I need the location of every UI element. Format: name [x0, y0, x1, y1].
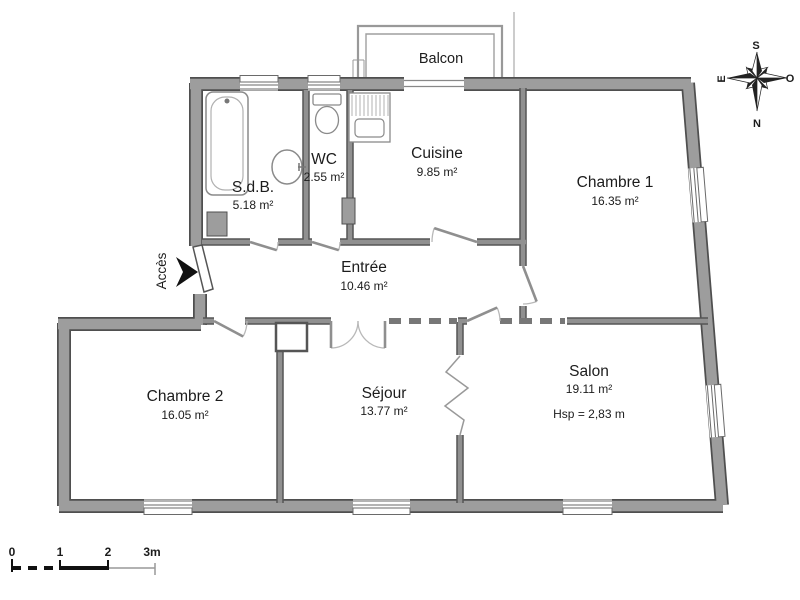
bathtub-faucet-icon: [225, 99, 230, 104]
entrance-door-leaf: [193, 245, 213, 292]
door-arc: [432, 228, 434, 242]
door-leaf: [523, 266, 537, 301]
room-name-entree: Entrée: [341, 259, 387, 276]
scale-label-0: 0: [9, 545, 16, 559]
window-frame: [563, 508, 612, 515]
entrance-door: [193, 245, 213, 292]
door-leaf: [250, 242, 277, 250]
toilet-tank: [313, 94, 341, 105]
room-area-sejour: 13.77 m²: [360, 404, 407, 418]
door-arc: [331, 321, 358, 348]
room-name-sdb: S.d.B.: [232, 179, 274, 196]
room-area-chambre2: 16.05 m²: [161, 408, 208, 422]
wall-pier-sdb: [207, 212, 227, 236]
room-name-sejour: Séjour: [362, 385, 407, 402]
scale-bar: 0 1 2 3m: [9, 545, 161, 575]
compass-rose: [727, 52, 787, 111]
room-area-entree: 10.46 m²: [340, 279, 387, 293]
exterior-wall: [688, 83, 722, 505]
compass-letter-e: E: [716, 75, 728, 82]
fixtures: [206, 92, 468, 435]
access-label: Accès: [154, 252, 169, 289]
compass-letter-n: N: [753, 118, 761, 130]
window-frame: [144, 508, 192, 515]
door-leaf: [434, 228, 477, 242]
scale-label-1: 1: [57, 545, 64, 559]
room-area-wc: 2.55 m²: [304, 170, 345, 184]
door-arc: [497, 308, 500, 321]
floor-plan-svg: Balcon S.d.B. 5.18 m² WC 2.55 m² Cuisin: [0, 0, 800, 600]
window-frame: [353, 508, 410, 515]
window-frame: [240, 76, 278, 83]
room-name-salon: Salon: [569, 363, 609, 380]
kitchen-sink-bowl: [355, 119, 384, 137]
room-name-chambre1: Chambre 1: [577, 174, 654, 191]
door-leaf: [312, 242, 339, 250]
room-area-salon: 19.11 m²: [566, 382, 612, 396]
door-leaf: [214, 321, 243, 336]
scale-label-3m: 3m: [143, 545, 160, 559]
exterior-walls: [58, 83, 723, 506]
room-area-chambre1: 16.35 m²: [591, 194, 638, 208]
entry-closet: [276, 323, 307, 351]
access-marker: Accès: [154, 252, 198, 289]
scale-label-2: 2: [105, 545, 112, 559]
access-arrow-icon: [176, 257, 198, 287]
compass-letter-s: S: [752, 40, 759, 52]
washbasin: [272, 150, 302, 184]
ceiling-height-salon: Hsp = 2,83 m: [553, 407, 625, 421]
opening-break-symbol: [445, 356, 468, 435]
room-name-wc: WC: [311, 151, 337, 168]
room-name-cuisine: Cuisine: [411, 145, 463, 162]
room-area-sdb: 5.18 m²: [233, 198, 274, 212]
door-arc: [358, 321, 385, 348]
exterior-details: [353, 12, 514, 79]
balcony-label: Balcon: [419, 51, 463, 67]
window-frame: [308, 76, 340, 83]
door-leaf: [467, 308, 497, 321]
door-arc: [523, 301, 537, 304]
room-name-chambre2: Chambre 2: [147, 388, 224, 405]
room-area-cuisine: 9.85 m²: [417, 165, 458, 179]
floor-plan-page: Balcon S.d.B. 5.18 m² WC 2.55 m² Cuisin: [0, 0, 800, 600]
compass-letter-o: O: [786, 73, 795, 85]
wall-pier-kitchen: [342, 198, 355, 224]
toilet-bowl: [316, 107, 339, 134]
